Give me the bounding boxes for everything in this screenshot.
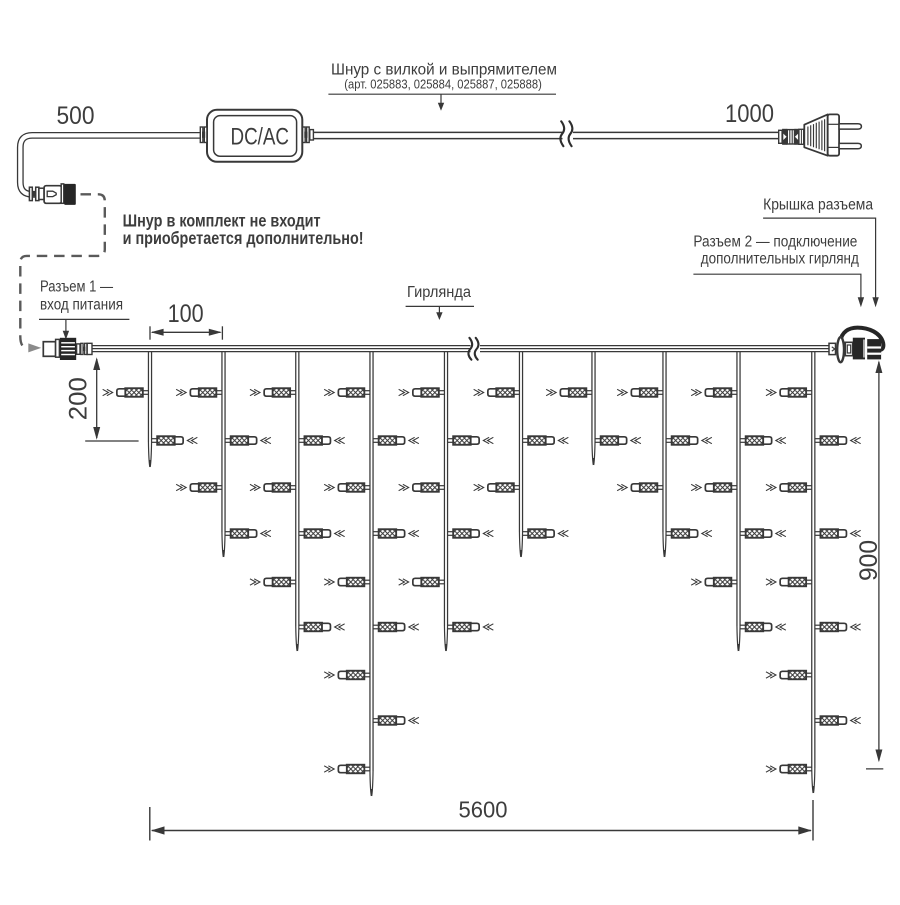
svg-text:(арт. 025883, 025884, 025887,: (арт. 025883, 025884, 025887, 025888) [344,77,542,91]
svg-text:Гирлянда: Гирлянда [407,284,471,301]
svg-text:DC/AC: DC/AC [231,124,290,151]
svg-text:100: 100 [168,300,204,328]
svg-text:и приобретается дополнительно!: и приобретается дополнительно! [123,228,364,248]
svg-text:500: 500 [57,102,95,130]
svg-text:900: 900 [855,540,883,581]
svg-text:Крышка разъема: Крышка разъема [763,196,873,213]
svg-text:Разъем 1 —: Разъем 1 — [40,279,113,296]
svg-text:вход питания: вход питания [40,297,123,314]
svg-text:Разъем 2 — подключение: Разъем 2 — подключение [693,234,857,251]
svg-text:дополнительных гирлянд: дополнительных гирлянд [701,251,859,268]
svg-text:5600: 5600 [459,797,508,823]
svg-text:Шнур с вилкой и выпрямителем: Шнур с вилкой и выпрямителем [331,61,557,78]
svg-text:200: 200 [65,377,93,420]
svg-text:1000: 1000 [725,100,774,128]
